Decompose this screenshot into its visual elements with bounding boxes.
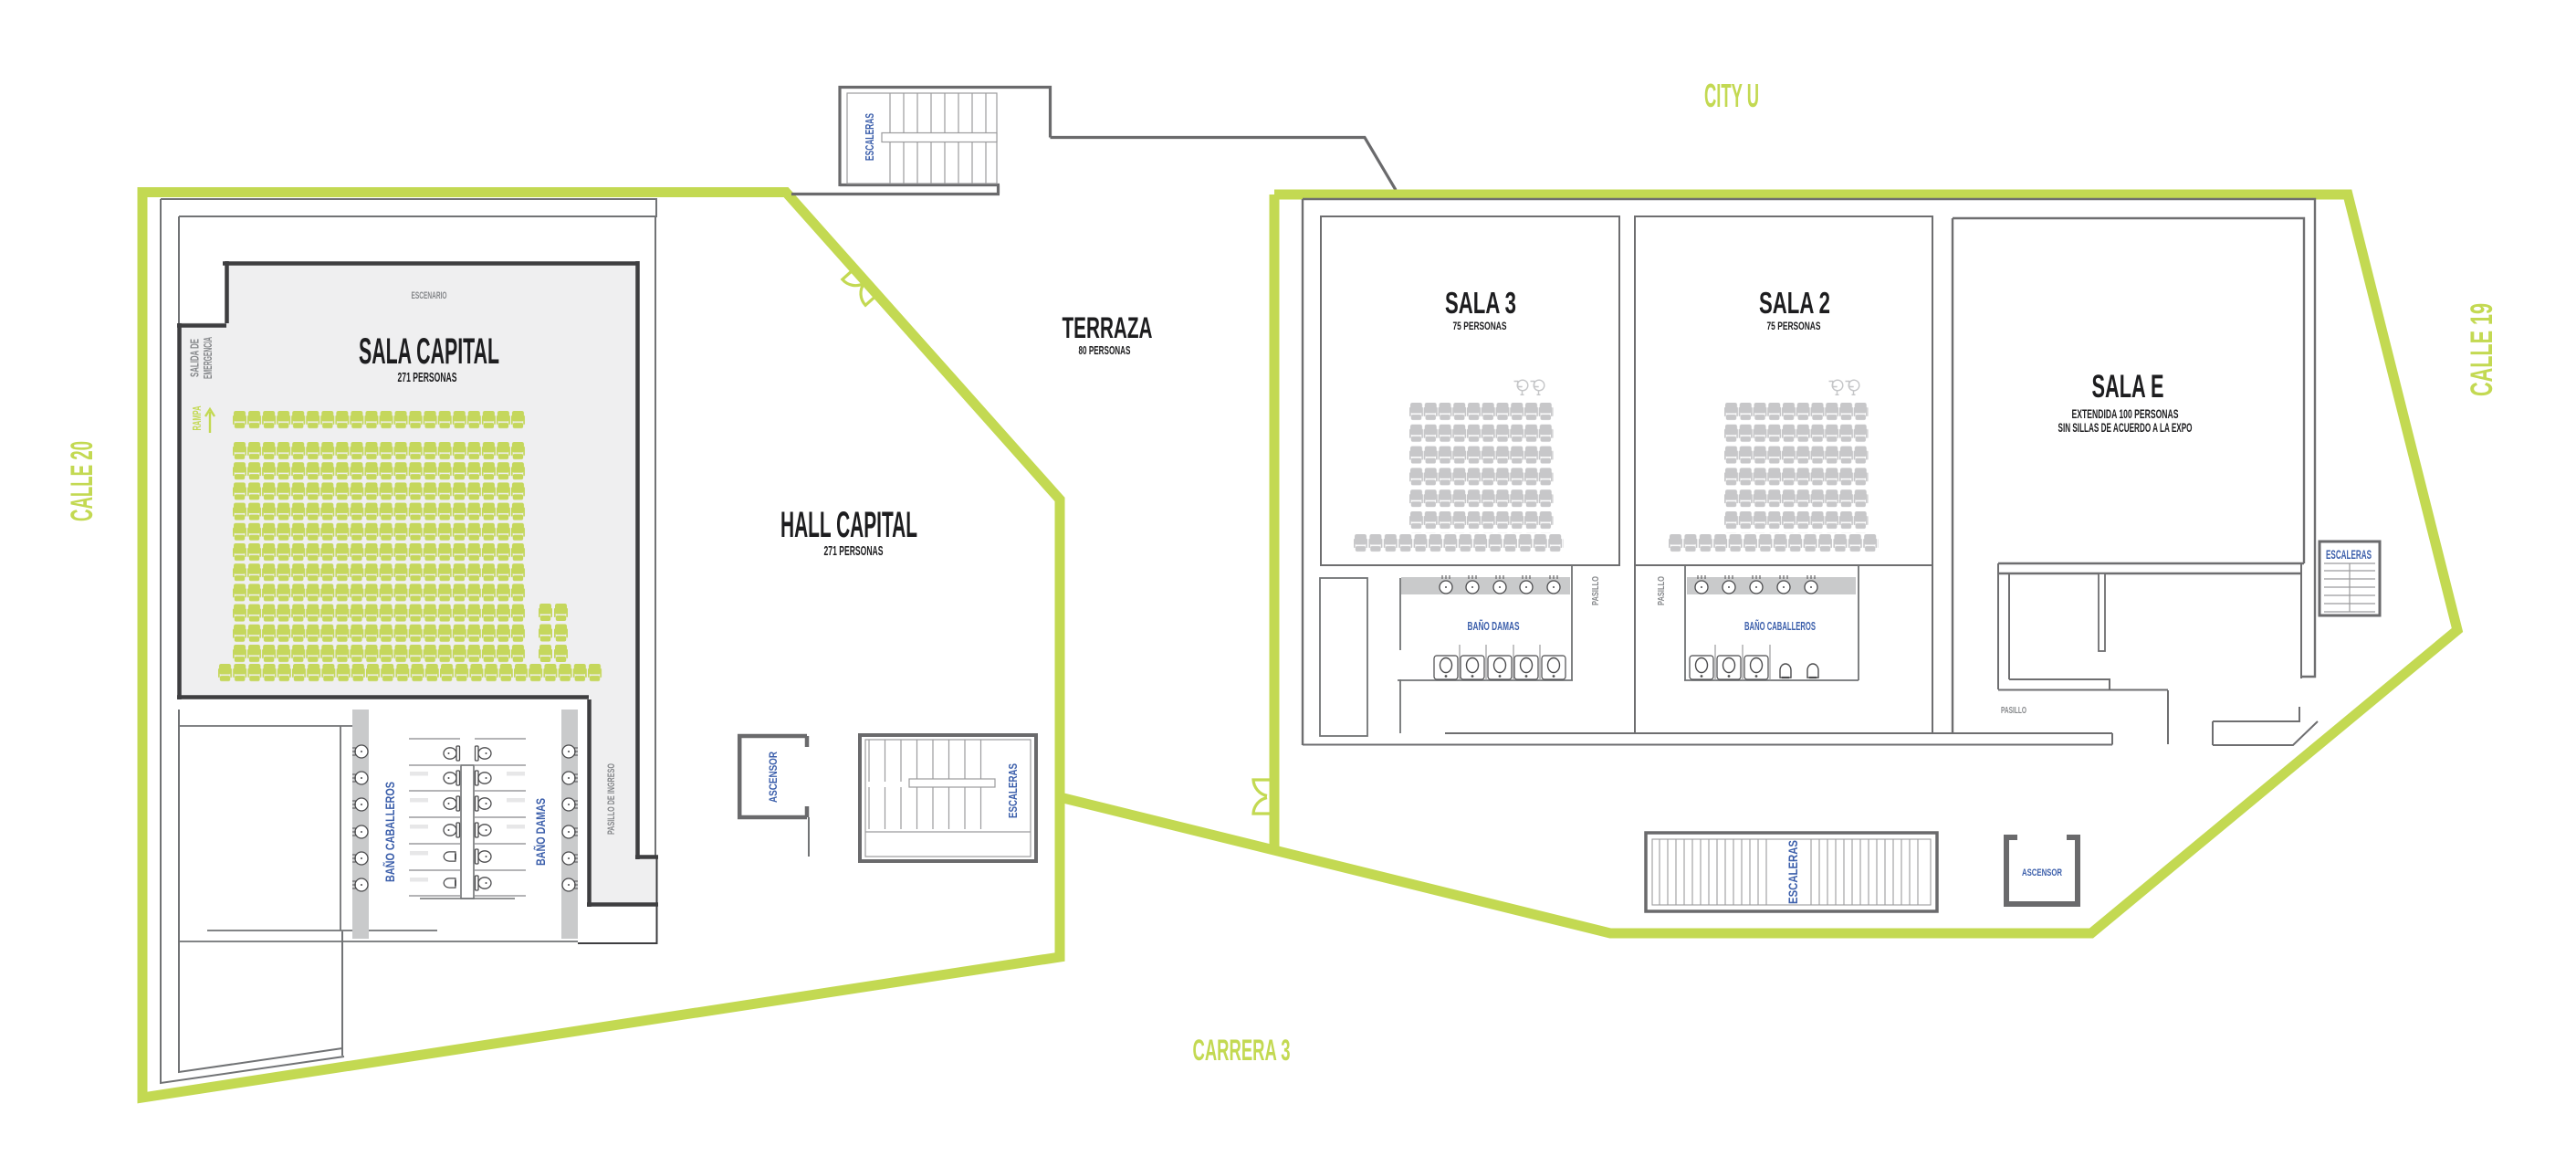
svg-text:BAÑO CABALLEROS: BAÑO CABALLEROS	[382, 782, 397, 882]
svg-text:ESCALERAS: ESCALERAS	[863, 113, 876, 161]
svg-text:BAÑO DAMAS: BAÑO DAMAS	[532, 798, 548, 866]
svg-text:ESCALERAS: ESCALERAS	[1006, 763, 1020, 818]
svg-text:EMERGENCIA: EMERGENCIA	[201, 337, 215, 379]
svg-text:EXTENDIDA 100 PERSONAS: EXTENDIDA 100 PERSONAS	[2072, 406, 2179, 421]
svg-text:CARRERA 3: CARRERA 3	[1193, 1034, 1291, 1067]
svg-text:SALIDA DE: SALIDA DE	[188, 339, 202, 377]
svg-text:ESCALERAS: ESCALERAS	[2326, 548, 2372, 562]
svg-text:SALA CAPITAL: SALA CAPITAL	[359, 331, 499, 372]
svg-text:SALA 3: SALA 3	[1445, 286, 1516, 320]
svg-text:ESCALERAS: ESCALERAS	[1785, 840, 1800, 904]
svg-text:TERRAZA: TERRAZA	[1063, 311, 1153, 344]
svg-text:SALA E: SALA E	[2092, 369, 2164, 405]
svg-text:SALA 2: SALA 2	[1759, 286, 1830, 320]
svg-text:HALL CAPITAL: HALL CAPITAL	[780, 505, 917, 545]
svg-text:80 PERSONAS: 80 PERSONAS	[1079, 343, 1131, 357]
svg-text:CALLE 20: CALLE 20	[65, 441, 99, 521]
svg-text:271 PERSONAS: 271 PERSONAS	[398, 371, 457, 385]
svg-text:BAÑO CABALLEROS: BAÑO CABALLEROS	[1744, 619, 1816, 633]
svg-text:ESCENARIO: ESCENARIO	[412, 290, 447, 301]
svg-text:75 PERSONAS: 75 PERSONAS	[1767, 320, 1821, 332]
svg-text:271 PERSONAS: 271 PERSONAS	[824, 544, 884, 559]
svg-text:BAÑO DAMAS: BAÑO DAMAS	[1468, 619, 1520, 633]
svg-text:RAMPA: RAMPA	[191, 406, 204, 431]
svg-text:75 PERSONAS: 75 PERSONAS	[1453, 320, 1507, 332]
svg-text:PASILLO: PASILLO	[2001, 706, 2026, 716]
svg-text:PASILLO DE INGRESO: PASILLO DE INGRESO	[606, 763, 617, 835]
svg-text:CALLE 19: CALLE 19	[2465, 303, 2499, 396]
svg-text:PASILLO: PASILLO	[1591, 576, 1601, 605]
svg-text:SIN SILLAS DE ACUERDO A LA EXP: SIN SILLAS DE ACUERDO A LA EXPO	[2058, 420, 2193, 435]
svg-text:ASCENSOR: ASCENSOR	[2022, 867, 2062, 878]
svg-text:ASCENSOR: ASCENSOR	[767, 752, 780, 803]
svg-text:CITY U: CITY U	[1704, 77, 1759, 114]
svg-text:PASILLO: PASILLO	[1657, 576, 1667, 605]
